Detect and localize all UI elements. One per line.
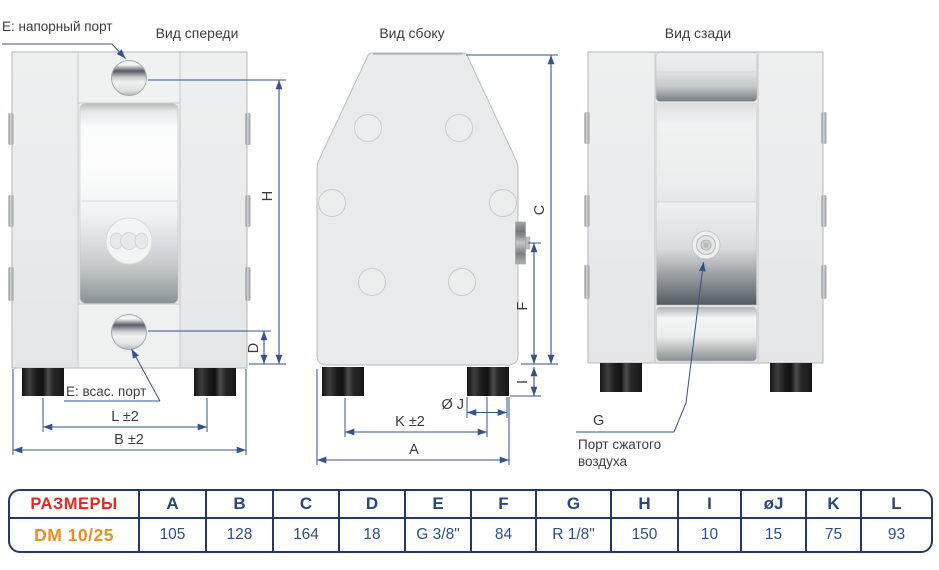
col-header-g: G: [537, 491, 610, 519]
table-col-k: K 75: [805, 491, 860, 551]
rear-top-cylinder: [656, 53, 757, 102]
dim-label-k: K ±2: [395, 414, 425, 430]
technical-drawing: H D L ±2 B ±2 Е: напорный порт Е: всас. …: [0, 0, 939, 488]
table-col-label: РАЗМЕРЫ DM 10/25: [10, 491, 138, 551]
dimensions-table: РАЗМЕРЫ DM 10/25 A 105 B 128 C 164 D 18 …: [8, 489, 933, 553]
col-value-h: 150: [612, 519, 677, 551]
air-port-label-line1: Порт сжатого: [578, 437, 661, 452]
discharge-port: [112, 61, 147, 96]
col-header-f: F: [472, 491, 535, 519]
col-header-d: D: [340, 491, 404, 519]
rear-foot-left: [600, 363, 642, 392]
rear-upper-panel: [657, 103, 757, 202]
dim-label-g: G: [593, 413, 604, 429]
col-value-a: 105: [140, 519, 205, 551]
table-row-label: РАЗМЕРЫ: [10, 491, 138, 519]
dim-label-f: F: [515, 301, 531, 310]
table-col-i: I 10: [677, 491, 740, 551]
col-header-i: I: [679, 491, 740, 519]
col-value-c: 164: [274, 519, 338, 551]
col-header-l: L: [862, 491, 931, 519]
col-value-d: 18: [340, 519, 404, 551]
rear-view: [585, 52, 827, 392]
dim-label-c: C: [532, 205, 548, 215]
rear-bottom-cylinder: [657, 307, 757, 361]
side-body: [317, 53, 518, 365]
table-col-f: F 84: [470, 491, 535, 551]
col-header-j: øJ: [742, 491, 805, 519]
rear-view-title: Вид сзади: [665, 25, 731, 41]
side-foot-right: [467, 367, 509, 396]
col-value-i: 10: [679, 519, 740, 551]
col-header-c: C: [274, 491, 338, 519]
dim-label-h: H: [260, 191, 276, 201]
table-col-j: øJ 15: [740, 491, 805, 551]
table-col-d: D 18: [338, 491, 404, 551]
col-value-b: 128: [207, 519, 272, 551]
front-view-title: Вид спереди: [156, 25, 239, 41]
front-mid-panel: [80, 104, 178, 304]
table-col-l: L 93: [860, 491, 931, 551]
col-header-b: B: [207, 491, 272, 519]
col-value-k: 75: [807, 519, 860, 551]
front-foot-left: [22, 368, 64, 396]
table-col-b: B 128: [205, 491, 272, 551]
dim-label-d: D: [246, 343, 262, 353]
side-foot-left: [322, 367, 364, 396]
table-col-h: H 150: [610, 491, 677, 551]
col-header-e: E: [406, 491, 470, 519]
col-value-e: G 3/8": [406, 519, 470, 551]
model-name: DM 10/25: [10, 519, 138, 551]
col-value-l: 93: [862, 519, 931, 551]
col-header-k: K: [807, 491, 860, 519]
suction-port-label: Е: всас. порт: [66, 384, 146, 399]
col-value-f: 84: [472, 519, 535, 551]
dim-label-b: B ±2: [114, 432, 144, 448]
rear-foot-right: [770, 363, 812, 392]
pump-dimensions-sheet: H D L ±2 B ±2 Е: напорный порт Е: всас. …: [0, 0, 939, 570]
col-header-a: A: [140, 491, 205, 519]
side-view-title: Вид сбоку: [379, 25, 444, 41]
col-header-h: H: [612, 491, 677, 519]
air-port-label-line2: воздуха: [578, 454, 627, 469]
table-col-e: E G 3/8": [404, 491, 470, 551]
suction-port: [112, 315, 147, 350]
front-foot-right: [194, 368, 236, 396]
side-view: [317, 53, 530, 396]
dim-label-i: I: [515, 380, 531, 384]
air-port: [692, 231, 720, 259]
dim-label-j: Ø J: [441, 397, 464, 413]
front-view: [9, 52, 251, 396]
dim-label-a: A: [409, 442, 419, 458]
side-air-fitting: [516, 222, 531, 264]
dim-label-l: L ±2: [111, 409, 139, 425]
table-col-c: C 164: [272, 491, 338, 551]
table-col-a: A 105: [138, 491, 205, 551]
front-hub: [106, 218, 152, 264]
col-value-j: 15: [742, 519, 805, 551]
discharge-port-label: Е: напорный порт: [2, 19, 112, 34]
table-col-g: G R 1/8": [535, 491, 610, 551]
col-value-g: R 1/8": [537, 519, 610, 551]
